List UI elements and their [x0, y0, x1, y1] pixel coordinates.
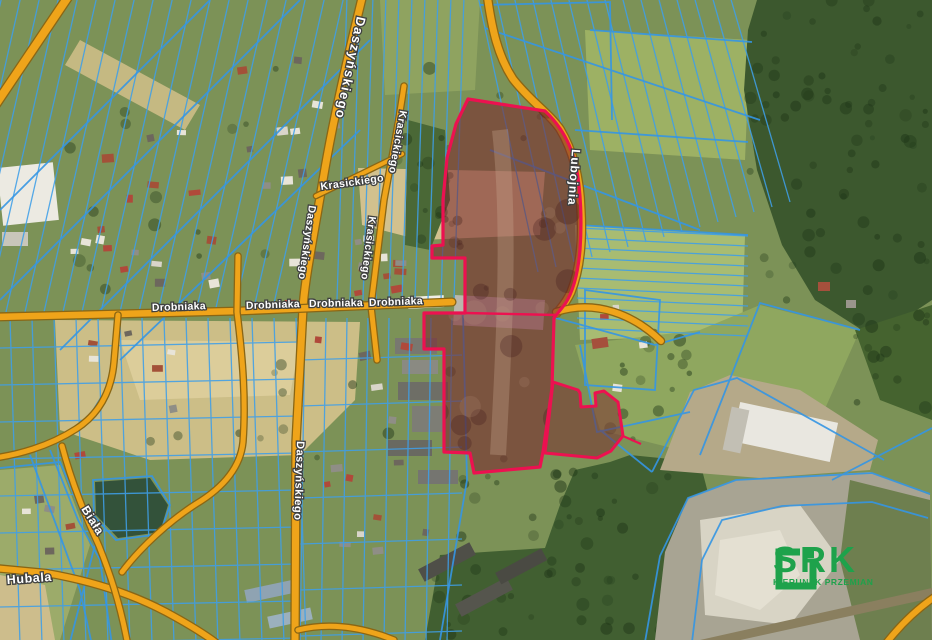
tree — [670, 387, 675, 392]
tree — [554, 520, 564, 530]
tree — [605, 617, 614, 626]
tree — [460, 479, 469, 488]
tree — [806, 208, 815, 217]
tree — [871, 160, 879, 168]
building — [102, 154, 115, 163]
tree — [783, 296, 790, 303]
tree — [150, 191, 162, 203]
building — [402, 360, 438, 374]
street-label-drobniaka-1: Drobniaka — [152, 300, 206, 314]
tree — [575, 563, 585, 573]
tree — [529, 513, 537, 521]
tree — [569, 468, 578, 477]
tree — [854, 399, 861, 406]
tree — [893, 375, 901, 383]
tree — [602, 595, 613, 606]
tree — [547, 568, 557, 578]
parcel-texture-blob — [451, 415, 472, 436]
tree — [576, 615, 586, 625]
tree — [922, 121, 929, 128]
tree — [559, 495, 571, 507]
tree — [681, 350, 692, 361]
tree — [853, 334, 858, 339]
building — [418, 470, 458, 484]
tree — [653, 405, 664, 416]
building — [398, 382, 448, 400]
building — [22, 508, 31, 514]
tree — [918, 241, 925, 248]
tree — [789, 262, 797, 270]
parcel-texture-blob — [458, 436, 472, 450]
tree — [879, 84, 887, 92]
building — [315, 336, 322, 343]
tree — [824, 88, 830, 94]
tree — [809, 162, 816, 169]
tree — [554, 480, 566, 492]
tree — [438, 135, 444, 141]
building — [201, 272, 211, 280]
tree — [924, 312, 930, 318]
tree — [146, 437, 155, 446]
tree — [276, 359, 287, 370]
building — [314, 251, 325, 260]
tree — [864, 344, 872, 352]
building — [89, 356, 99, 362]
tree — [470, 564, 481, 575]
tree — [852, 313, 865, 326]
tree — [499, 627, 508, 636]
tree — [863, 104, 874, 115]
tree — [876, 353, 885, 362]
tree — [469, 492, 480, 503]
building — [818, 282, 830, 291]
tree — [528, 614, 534, 620]
tree — [899, 109, 911, 121]
tree — [772, 56, 780, 64]
tree — [870, 135, 875, 140]
building — [95, 235, 105, 245]
parcel-texture-blob — [554, 222, 566, 234]
tree — [687, 371, 693, 377]
tree — [863, 285, 873, 295]
tree — [596, 508, 605, 517]
tree — [781, 113, 789, 121]
building — [294, 57, 302, 65]
parcel-texture-blob — [519, 377, 529, 387]
parcel-texture-blob — [504, 288, 517, 301]
tree — [196, 253, 202, 259]
tree — [923, 109, 928, 114]
tree — [803, 90, 814, 101]
tree — [273, 66, 279, 72]
building — [330, 464, 342, 472]
tree — [173, 431, 182, 440]
tree — [840, 193, 847, 200]
building — [45, 548, 54, 555]
tree — [872, 373, 879, 380]
building — [345, 474, 353, 482]
tree — [494, 480, 499, 485]
tree — [410, 183, 419, 192]
tree — [904, 135, 917, 148]
tree — [761, 31, 767, 37]
building — [146, 134, 154, 142]
tree — [623, 622, 635, 634]
srk-logo: SRK KIERUNEK PRZEMIAN — [770, 545, 874, 587]
building — [237, 66, 248, 75]
tree — [508, 593, 514, 599]
tree — [485, 474, 491, 480]
tree — [227, 124, 237, 134]
tree — [848, 149, 856, 157]
tree — [646, 482, 658, 494]
tree — [847, 167, 853, 173]
tree — [760, 253, 769, 262]
tree — [888, 290, 897, 299]
tree — [913, 310, 925, 322]
tree — [851, 49, 858, 56]
parcel-texture-blob — [544, 207, 555, 218]
building — [357, 531, 364, 537]
tree — [591, 473, 598, 480]
tree — [435, 212, 442, 219]
street-label-drobniaka-2: Drobniaka — [246, 298, 300, 312]
building — [103, 245, 112, 251]
tree — [257, 435, 264, 442]
tree — [383, 428, 395, 440]
tree — [885, 54, 895, 64]
tree — [617, 523, 628, 534]
tree — [664, 473, 671, 480]
tree — [752, 63, 763, 74]
tree — [818, 72, 825, 79]
tree — [873, 259, 885, 271]
tree — [917, 11, 924, 18]
tree — [845, 101, 852, 108]
tree — [910, 94, 915, 99]
street-label-drobniaka-4: Drobniaka — [369, 295, 423, 309]
tree — [809, 18, 816, 25]
tree — [575, 517, 583, 525]
tree — [620, 368, 628, 376]
tree — [773, 91, 780, 98]
building — [151, 261, 162, 267]
tree — [571, 577, 580, 586]
building — [169, 404, 178, 413]
building — [324, 481, 331, 488]
tree — [604, 576, 613, 585]
tree — [893, 324, 900, 331]
tree — [783, 11, 791, 19]
building — [394, 268, 406, 275]
tree — [636, 375, 646, 385]
tree — [612, 499, 617, 504]
building — [372, 547, 383, 555]
street-label-drobniaka-3: Drobniaka — [309, 297, 363, 310]
tree — [747, 168, 754, 175]
tree — [348, 380, 357, 389]
tree — [528, 530, 539, 541]
tree — [822, 95, 831, 104]
tree — [830, 263, 841, 274]
tree — [858, 216, 870, 228]
parcel-texture-blob — [535, 302, 548, 315]
tree — [791, 179, 802, 190]
tree — [893, 234, 902, 243]
tree — [816, 228, 825, 237]
tree — [906, 24, 911, 29]
parcel-texture-blob — [533, 217, 556, 240]
building — [177, 130, 186, 135]
tree — [620, 363, 625, 368]
building — [395, 260, 406, 266]
parcel-texture-blob — [473, 284, 489, 300]
tree — [278, 388, 287, 397]
tree — [581, 537, 594, 550]
tree — [765, 270, 773, 278]
tree — [417, 234, 427, 244]
building — [388, 416, 396, 424]
tree — [923, 319, 929, 325]
tree — [872, 16, 881, 25]
tree — [271, 369, 278, 376]
tree — [874, 234, 880, 240]
parcel-texture-blob — [459, 396, 480, 417]
building — [381, 254, 388, 262]
tree — [790, 101, 801, 112]
tree — [865, 120, 873, 128]
building — [355, 239, 362, 246]
satellite-map[interactable]: Daszyńskiego Daszyńskiego Daszyńskiego K… — [0, 0, 932, 640]
tree — [851, 135, 862, 146]
building — [846, 300, 856, 308]
tree — [804, 246, 815, 257]
tree — [769, 70, 780, 81]
tree — [804, 75, 814, 85]
tree — [243, 121, 249, 127]
tree — [678, 359, 688, 369]
building — [394, 460, 404, 466]
tree — [550, 469, 561, 480]
tree — [917, 183, 927, 193]
tree — [919, 401, 932, 414]
tree — [802, 229, 815, 242]
tree — [547, 556, 556, 565]
tree — [854, 43, 860, 49]
tree — [865, 320, 878, 333]
tree — [278, 424, 288, 434]
tree — [433, 591, 445, 603]
tree — [744, 92, 756, 104]
tree — [423, 62, 436, 75]
tree — [576, 598, 589, 611]
tree — [667, 353, 674, 360]
srk-logo-icon — [770, 545, 818, 593]
building — [152, 365, 163, 372]
tree — [632, 573, 639, 580]
tree — [423, 208, 428, 213]
parcel-texture-blob — [500, 335, 522, 357]
tree — [924, 258, 930, 264]
tree — [567, 514, 572, 519]
tree — [314, 455, 320, 461]
